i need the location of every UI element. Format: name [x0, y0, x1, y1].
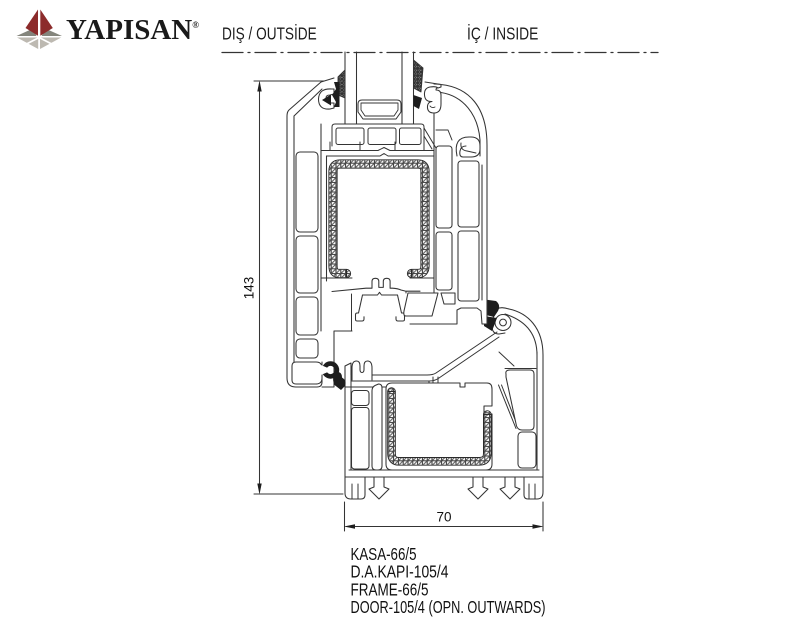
svg-text:70: 70	[436, 510, 451, 525]
svg-text:DOOR-105/4 (OPN. OUTWARDS): DOOR-105/4 (OPN. OUTWARDS)	[351, 598, 546, 617]
svg-text:KASA-66/5: KASA-66/5	[351, 545, 417, 564]
svg-text:D.A.KAPI-105/4: D.A.KAPI-105/4	[351, 563, 449, 582]
svg-text:143: 143	[242, 277, 257, 300]
svg-text:FRAME-66/5: FRAME-66/5	[351, 581, 429, 600]
